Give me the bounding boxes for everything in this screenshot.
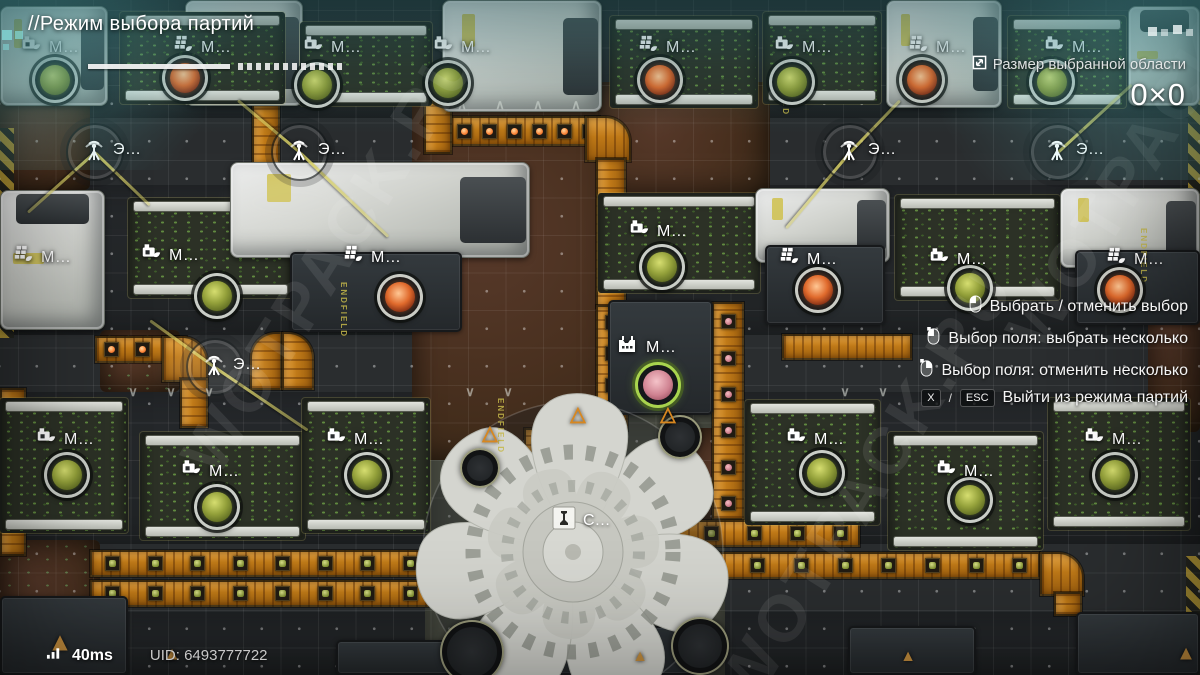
belt-item-plant [969, 558, 984, 573]
belt-item-plant [360, 556, 375, 571]
belt-item-plant [275, 586, 290, 601]
machine-label: М… [432, 34, 491, 61]
plant-dot [751, 530, 758, 537]
machine-label-text: М… [1134, 251, 1164, 269]
factory-icon [615, 333, 639, 362]
belt-item-plant [838, 558, 853, 573]
plant-dot [279, 560, 286, 567]
hatch-triangle: ▲ [47, 627, 73, 658]
power-pylon[interactable] [836, 138, 862, 169]
radio-tower-icon [836, 138, 862, 169]
plant-dot [152, 590, 159, 597]
solar-leaf-icon [1105, 246, 1127, 273]
power-pylon[interactable] [1044, 138, 1070, 169]
plant-dot [152, 560, 159, 567]
machine-label: М… [325, 426, 384, 453]
machine-label-text: М… [657, 223, 687, 241]
ore-item-icon [907, 65, 937, 95]
product-slot-plant[interactable] [799, 450, 845, 496]
steam-wisp [230, 175, 350, 230]
pylon-label-text: Э… [1076, 141, 1105, 159]
ore-item-icon [803, 275, 833, 305]
lock-leaf-icon [1043, 34, 1065, 61]
machine-label-text: М… [169, 247, 199, 265]
warning-triangle: △ [482, 421, 497, 446]
plant-dot [754, 562, 761, 569]
belt-item-plant [794, 558, 809, 573]
steam-wisp [165, 345, 265, 390]
solar-leaf-icon [778, 246, 800, 273]
endfield-marking: ENDFIELD [339, 282, 348, 338]
hub-label[interactable]: С… [552, 506, 611, 535]
belt-item-ore [557, 124, 572, 139]
machine-label-text: М… [807, 251, 837, 269]
plant-dot [194, 560, 201, 567]
machine-label-text: М… [64, 431, 94, 449]
belt-item-plant [148, 586, 163, 601]
conveyor-belt[interactable] [782, 334, 912, 360]
scene: С… ENDFIELDENDFIELDENDFIELDENDFIELDМ…М…М… [0, 0, 1200, 675]
hub-label-text: С… [583, 512, 611, 530]
machine-label-text: М… [957, 251, 987, 269]
lock-leaf-icon [628, 218, 650, 245]
lock-leaf-icon [180, 458, 202, 485]
ore-dot [511, 128, 518, 135]
product-slot-ore[interactable] [1097, 267, 1143, 313]
belt-item-ore [135, 342, 150, 357]
belt-item-plant [747, 526, 762, 541]
machine-label-text: М… [461, 39, 491, 57]
product-slot-ore[interactable] [899, 57, 945, 103]
plant-dot [798, 562, 805, 569]
conveyor-belt[interactable] [282, 332, 314, 390]
machine-label: М… [140, 242, 199, 269]
greenhouse-plot[interactable] [610, 16, 758, 108]
machine-label: М… [928, 246, 987, 273]
plant-item-icon [202, 281, 232, 311]
machine-label: М… [1083, 426, 1142, 453]
conveyor-belt[interactable] [1040, 552, 1084, 596]
lock-leaf-icon [432, 34, 454, 61]
ore-dot [108, 346, 115, 353]
hatch-triangle: ▲ [1176, 643, 1196, 666]
plant-dot [279, 590, 286, 597]
belt-item-plant [360, 586, 375, 601]
product-slot-ore[interactable] [162, 55, 208, 101]
warning-triangle: △ [660, 402, 675, 427]
lock-leaf-icon [325, 426, 347, 453]
product-slot-plant[interactable] [32, 57, 78, 103]
lock-leaf-icon [35, 426, 57, 453]
plant-item-icon [647, 252, 677, 282]
belt-item-plant [275, 556, 290, 571]
product-slot-plant[interactable] [639, 244, 685, 290]
machine-label: М… [172, 34, 231, 61]
plant-dot [1016, 562, 1023, 569]
radio-tower-icon [286, 138, 312, 169]
ore-dot [461, 128, 468, 135]
machine-label: М… [628, 218, 687, 245]
plant-item-icon [202, 492, 232, 522]
machine-label: М… [20, 34, 79, 61]
solar-leaf-icon [342, 244, 364, 271]
plant-dot [842, 562, 849, 569]
meat-item-icon [643, 370, 673, 400]
product-slot-plant[interactable] [1092, 452, 1138, 498]
belt-item-plant [750, 558, 765, 573]
belt-item-plant [190, 556, 205, 571]
pylon-label: Э… [318, 141, 347, 159]
plant-item-icon [40, 65, 70, 95]
plant-dot [837, 530, 844, 537]
machine-label-text: М… [1112, 431, 1142, 449]
flow-chevron: ∧ [571, 97, 581, 113]
product-slot-plant[interactable] [425, 60, 471, 106]
machine-label-text: М… [814, 431, 844, 449]
belt-item-ore [457, 124, 472, 139]
product-slot-plant[interactable] [1029, 59, 1075, 105]
machine-label: М… [1105, 246, 1164, 273]
plant-dot [109, 560, 116, 567]
machine-label-text: М… [666, 39, 696, 57]
belt-item-plant [881, 558, 896, 573]
ore-dot [536, 128, 543, 135]
ore-item-icon [385, 282, 415, 312]
lock-leaf-icon [20, 34, 42, 61]
flow-chevron: ∨ [878, 384, 888, 400]
hatch-triangle: ▲ [900, 648, 916, 666]
lock-leaf-icon [928, 246, 950, 273]
belt-item-plant [790, 526, 805, 541]
plant-dot [929, 562, 936, 569]
plant-dot [322, 560, 329, 567]
plant-dot [194, 590, 201, 597]
machine-label-text: М… [354, 431, 384, 449]
conveyor-belt[interactable] [90, 580, 430, 607]
belt-item-plant [318, 556, 333, 571]
plant-item-icon [1100, 460, 1130, 490]
solar-leaf-icon [637, 34, 659, 61]
machine-label: М… [1043, 34, 1102, 61]
machine-label: М… [180, 458, 239, 485]
ore-item-icon [645, 65, 675, 95]
flow-chevron: ∧ [495, 97, 505, 113]
conveyor-belt[interactable] [90, 550, 430, 577]
belt-item-plant [1012, 558, 1027, 573]
plant-item-icon [955, 273, 985, 303]
pylon-label: Э… [868, 141, 897, 159]
product-slot-plant[interactable] [44, 452, 90, 498]
plant-item-icon [302, 70, 332, 100]
machine-label: М… [778, 246, 837, 273]
product-slot-plant[interactable] [194, 273, 240, 319]
plant-dot [885, 562, 892, 569]
solar-leaf-icon [907, 34, 929, 61]
radio-tower-icon [1044, 138, 1070, 169]
game-viewport: С… ENDFIELDENDFIELDENDFIELDENDFIELDМ…М…М… [0, 0, 1200, 675]
product-slot-ore[interactable] [637, 57, 683, 103]
product-slot-ore[interactable] [795, 267, 841, 313]
conveyor-belt[interactable] [450, 116, 600, 146]
machine-label-text: М… [1072, 39, 1102, 57]
machine-label-text: М… [201, 39, 231, 57]
machine-label: М… [12, 244, 71, 271]
ore-dot [486, 128, 493, 135]
flow-chevron: ∨ [503, 384, 513, 400]
hatch-triangle: ▲ [163, 644, 181, 665]
belt-item-plant [318, 586, 333, 601]
machine-label: М… [615, 333, 676, 362]
machine-label-text: М… [936, 39, 966, 57]
machine-label: М… [342, 244, 401, 271]
belt-item-ore [482, 124, 497, 139]
plant-dot [794, 530, 801, 537]
radio-tower-icon [81, 138, 107, 169]
processing-machine[interactable] [1128, 6, 1200, 106]
plant-item-icon [352, 460, 382, 490]
product-slot-plant[interactable] [769, 59, 815, 105]
machine-label-text: М… [802, 39, 832, 57]
machine-label: М… [773, 34, 832, 61]
machine-label: М… [907, 34, 966, 61]
product-slot-plant[interactable] [294, 62, 340, 108]
belt-item-ore [104, 342, 119, 357]
machine-label-text: М… [646, 339, 676, 357]
lock-leaf-icon [1083, 426, 1105, 453]
belt-item-ore [532, 124, 547, 139]
pylon-label: Э… [113, 141, 142, 159]
flow-chevron: ∨ [166, 384, 176, 400]
hatch-triangle: ▲ [632, 648, 648, 666]
belt-item-plant [148, 556, 163, 571]
machine-label: М… [785, 426, 844, 453]
ore-item-icon [1105, 275, 1135, 305]
belt-item-meat [721, 314, 736, 329]
belt-item-plant [190, 586, 205, 601]
belt-item-plant [233, 556, 248, 571]
belt-item-plant [233, 586, 248, 601]
plant-item-icon [777, 67, 807, 97]
flow-chevron: ∨ [840, 384, 850, 400]
plant-item-icon [1037, 67, 1067, 97]
machine-label: М… [35, 426, 94, 453]
flow-chevron: ∨ [128, 384, 138, 400]
solar-leaf-icon [172, 34, 194, 61]
belt-item-ore [507, 124, 522, 139]
machine-label-text: М… [371, 249, 401, 267]
plant-item-icon [433, 68, 463, 98]
lock-leaf-icon [935, 458, 957, 485]
belt-item-plant [833, 526, 848, 541]
lock-leaf-icon [140, 242, 162, 269]
product-slot-ore[interactable] [377, 274, 423, 320]
plant-dot [237, 590, 244, 597]
plant-dot [237, 560, 244, 567]
plant-dot [364, 590, 371, 597]
support-pad [460, 448, 500, 488]
product-slot-plant[interactable] [344, 452, 390, 498]
pylon-label: Э… [1076, 141, 1105, 159]
ore-dot [139, 346, 146, 353]
belt-item-meat [721, 351, 736, 366]
plant-item-icon [807, 458, 837, 488]
meat-dot [725, 318, 732, 325]
power-pylon[interactable] [286, 138, 312, 169]
machine-label: М… [935, 458, 994, 485]
power-pylon[interactable] [81, 138, 107, 169]
belt-item-plant [105, 556, 120, 571]
machine-label-text: М… [209, 463, 239, 481]
pylon-label-text: Э… [868, 141, 897, 159]
support-pad [671, 617, 729, 675]
ore-dot [561, 128, 568, 135]
ore-item-icon [170, 63, 200, 93]
flow-chevron: ∧ [533, 97, 543, 113]
pylon-label-text: Э… [113, 141, 142, 159]
warning-triangle: △ [570, 402, 585, 427]
hub-pin-icon [552, 506, 576, 535]
plant-dot [364, 560, 371, 567]
product-slot-plant[interactable] [194, 484, 240, 530]
support-pad [440, 620, 504, 675]
meat-dot [725, 355, 732, 362]
lock-leaf-icon [302, 34, 324, 61]
machine-label-text: М… [49, 39, 79, 57]
plant-item-icon [955, 485, 985, 515]
plant-dot [322, 590, 329, 597]
machine-label-text: М… [41, 249, 71, 267]
lock-leaf-icon [773, 34, 795, 61]
belt-item-plant [925, 558, 940, 573]
plant-dot [973, 562, 980, 569]
plant-item-icon [52, 460, 82, 490]
machine-label-text: М… [964, 463, 994, 481]
flow-chevron: ∨ [465, 384, 475, 400]
machine-label: М… [637, 34, 696, 61]
pylon-label-text: Э… [318, 141, 347, 159]
lock-leaf-icon [785, 426, 807, 453]
machine-label-text: М… [331, 39, 361, 57]
machine-label: М… [302, 34, 361, 61]
solar-leaf-icon [12, 244, 34, 271]
